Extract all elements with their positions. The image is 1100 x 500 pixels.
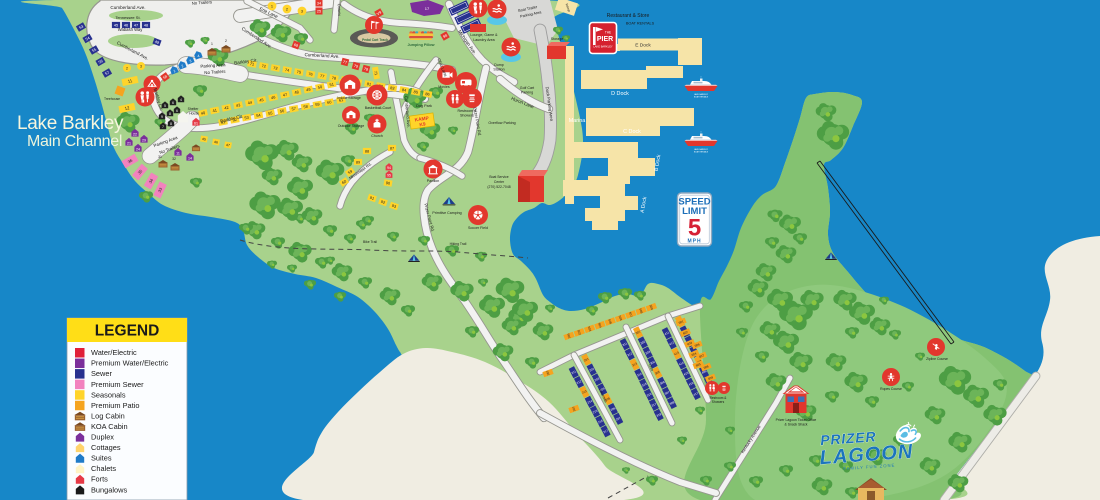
svg-text:47: 47 [226,143,231,148]
svg-text:57: 57 [291,106,296,112]
svg-text:Marina: Marina [569,118,585,124]
svg-text:83: 83 [390,85,395,91]
svg-text:Main Channel: Main Channel [27,133,122,150]
svg-text:89: 89 [356,159,360,164]
svg-text:8: 8 [169,112,171,116]
svg-text:11: 11 [176,151,180,155]
svg-text:61: 61 [194,121,198,125]
svg-text:LAKE BARKLEY: LAKE BARKLEY [593,45,613,49]
svg-text:Premium Patio: Premium Patio [91,401,139,410]
svg-text:BOAT RENTALS: BOAT RENTALS [694,95,709,98]
svg-text:Parking: Parking [521,91,533,95]
svg-text:95: 95 [387,174,391,178]
svg-text:46: 46 [214,140,219,145]
svg-text:Storage: Storage [551,37,564,41]
svg-text:BOAT RENTALS: BOAT RENTALS [694,150,709,153]
svg-text:31: 31 [158,155,162,159]
svg-text:55: 55 [268,110,273,116]
svg-text:48: 48 [144,22,148,27]
svg-text:21: 21 [127,141,131,145]
svg-text:Treehouse: Treehouse [104,97,120,101]
svg-text:5: 5 [688,215,701,242]
svg-text:Indoor Storage: Indoor Storage [337,96,361,100]
svg-text:House: House [189,112,199,116]
svg-text:Wabash Way: Wabash Way [118,27,143,32]
svg-text:53: 53 [244,115,249,121]
svg-text:25: 25 [317,9,321,13]
svg-text:2: 2 [286,7,288,12]
svg-text:Zipline Course: Zipline Course [926,357,948,361]
svg-text:Church: Church [371,134,383,138]
svg-text:8: 8 [170,122,172,126]
svg-text:6: 6 [176,109,178,113]
svg-text:7: 7 [162,125,164,129]
svg-text:Station: Station [493,68,504,72]
svg-text:Jumping Pillow: Jumping Pillow [407,43,434,47]
svg-text:78: 78 [331,75,336,81]
svg-text:Dog Park: Dog Park [416,104,432,108]
svg-text:BOAT RENTALS: BOAT RENTALS [626,22,655,26]
svg-text:Soccer Field: Soccer Field [468,226,488,230]
svg-text:32: 32 [172,157,176,161]
svg-text:Boat Service: Boat Service [489,175,508,179]
svg-text:(270) 522-7048: (270) 522-7048 [487,185,510,189]
svg-text:Pedal Cart Track: Pedal Cart Track [362,38,388,42]
svg-text:81: 81 [366,81,371,87]
svg-text:Restaurant & Store: Restaurant & Store [607,13,650,19]
svg-text:Seasonals: Seasonals [91,390,126,399]
svg-text:Primitive Camping: Primitive Camping [432,211,461,215]
svg-text:Premium Water/Electric: Premium Water/Electric [91,359,169,368]
svg-text:75: 75 [296,69,301,75]
svg-text:Cottages: Cottages [91,443,121,452]
svg-text:Outdoor Storage: Outdoor Storage [338,124,365,128]
svg-text:Duplex: Duplex [91,433,114,442]
svg-text:Sewer: Sewer [91,369,112,378]
svg-text:22: 22 [133,132,137,136]
svg-text:MPH: MPH [687,239,701,245]
svg-text:Overflow Parking: Overflow Parking [488,121,515,125]
svg-text:THE: THE [605,31,611,35]
svg-text:Lake Barkley: Lake Barkley [17,113,124,134]
svg-text:3: 3 [301,9,303,14]
svg-text:KOA Cabin: KOA Cabin [91,422,128,431]
svg-text:Log Cabin: Log Cabin [91,411,125,420]
svg-text:Dump: Dump [494,63,504,67]
svg-text:Pavilion: Pavilion [427,179,440,183]
svg-text:Golf Cart: Golf Cart [520,86,534,90]
svg-text:87: 87 [390,145,394,150]
svg-text:45: 45 [202,137,207,142]
svg-text:4: 4 [180,98,182,102]
svg-text:Hiking Trail: Hiking Trail [450,242,467,246]
svg-text:Shelter: Shelter [188,107,200,111]
svg-text:& Snack Shack: & Snack Shack [785,423,808,427]
svg-text:LEGEND: LEGEND [95,323,160,340]
svg-text:D Dock: D Dock [611,91,629,97]
svg-text:86: 86 [425,91,430,97]
svg-text:Tennessee St.: Tennessee St. [115,15,140,20]
svg-text:34: 34 [317,1,321,5]
svg-text:72: 72 [261,63,266,69]
svg-text:Showers: Showers [460,114,474,118]
svg-text:Forts: Forts [91,475,108,484]
svg-text:Premium Sewer: Premium Sewer [91,380,144,389]
svg-text:1: 1 [271,4,273,9]
svg-text:PIER: PIER [597,36,613,43]
svg-text:C Dock: C Dock [623,129,641,135]
svg-text:85: 85 [413,89,418,95]
svg-text:71: 71 [373,70,379,75]
svg-text:Showers: Showers [712,400,725,404]
svg-text:6: 6 [172,101,174,105]
svg-text:76: 76 [308,71,313,77]
svg-text:K9: K9 [419,122,426,129]
svg-text:Center: Center [494,180,505,184]
svg-text:29: 29 [142,138,146,142]
svg-text:Suites: Suites [91,454,112,463]
svg-text:9: 9 [161,115,163,119]
svg-text:Water/Electric: Water/Electric [91,348,137,357]
svg-text:56: 56 [279,108,284,114]
svg-text:59: 59 [315,101,320,107]
svg-text:Ropes Course: Ropes Course [880,387,902,391]
svg-text:Bike Trail: Bike Trail [363,240,377,244]
svg-text:2: 2 [225,39,227,43]
svg-text:24: 24 [136,147,140,151]
svg-text:17: 17 [425,6,430,11]
svg-text:Chalets: Chalets [91,464,116,473]
svg-text:Basketball-Court: Basketball-Court [365,106,392,110]
svg-text:14: 14 [188,156,192,160]
svg-text:1: 1 [211,42,213,46]
svg-text:Lounge, Game &: Lounge, Game & [470,33,498,37]
svg-text:58: 58 [303,104,308,110]
svg-text:Laundry Area: Laundry Area [473,38,494,42]
svg-text:Ontario: Ontario [337,4,341,17]
svg-text:73: 73 [273,65,278,71]
svg-text:E Dock: E Dock [635,43,651,49]
svg-text:77: 77 [320,73,325,79]
svg-text:94: 94 [387,166,391,170]
svg-text:3: 3 [140,64,142,68]
svg-text:Cumberland Ave.: Cumberland Ave. [110,5,145,10]
svg-text:2: 2 [126,66,128,70]
svg-text:Movies: Movies [438,85,450,89]
svg-text:Prizer Lagoon Ticket Office: Prizer Lagoon Ticket Office [776,418,817,422]
svg-text:88: 88 [365,148,369,153]
svg-text:Bungalows: Bungalows [91,485,127,494]
